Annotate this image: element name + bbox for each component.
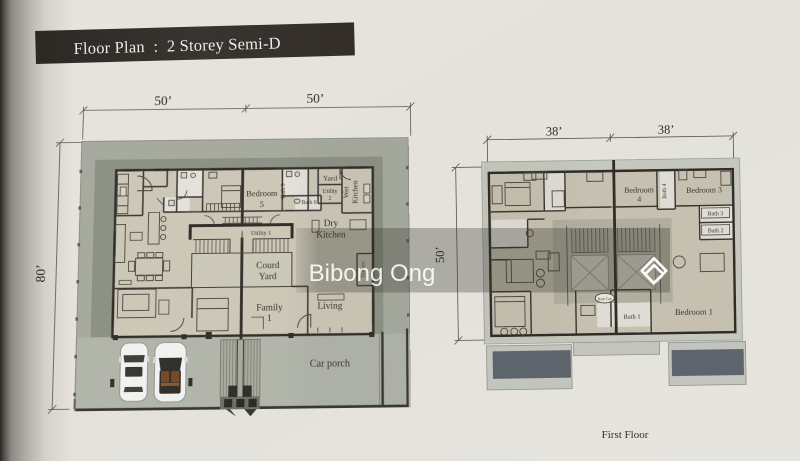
svg-text:Bath 1: Bath 1	[623, 314, 640, 321]
svg-text:38’: 38’	[658, 123, 675, 137]
svg-text:5: 5	[260, 200, 264, 209]
svg-text:Utility 1: Utility 1	[251, 231, 271, 237]
svg-text:Bedroom: Bedroom	[624, 185, 655, 194]
svg-text:Kitchen: Kitchen	[350, 180, 359, 204]
svg-text:Kitchen: Kitchen	[316, 229, 346, 239]
svg-text:Bath 2: Bath 2	[708, 228, 724, 234]
svg-text:80’: 80’	[33, 264, 49, 282]
svg-text:4: 4	[637, 195, 641, 204]
svg-text:Courd: Courd	[256, 260, 280, 270]
svg-text:Bath Tub: Bath Tub	[598, 297, 612, 301]
svg-text:Wet: Wet	[341, 185, 350, 198]
svg-text:1: 1	[267, 313, 272, 323]
svg-text:Bath 6: Bath 6	[302, 200, 317, 206]
svg-text:Bedroom 1: Bedroom 1	[675, 306, 713, 317]
svg-text:Living: Living	[317, 300, 342, 310]
svg-text:Bath 5: Bath 5	[281, 183, 287, 198]
svg-text:50’: 50’	[154, 93, 172, 108]
svg-text:Yard: Yard	[259, 271, 277, 281]
svg-text:Terrace: Terrace	[360, 261, 366, 278]
svg-text:Bath 4: Bath 4	[662, 183, 668, 198]
svg-text:Utility: Utility	[323, 189, 338, 195]
svg-text:Bath 3: Bath 3	[707, 211, 723, 217]
svg-text:Bedroom 3: Bedroom 3	[686, 185, 722, 195]
svg-text:2: 2	[329, 196, 332, 202]
svg-text:50’: 50’	[306, 91, 324, 106]
svg-text:Family: Family	[256, 302, 283, 313]
svg-text:Yard: Yard	[323, 174, 337, 183]
svg-text:Bedroom: Bedroom	[246, 189, 278, 198]
svg-text:Dry: Dry	[324, 218, 339, 228]
svg-text:Car porch: Car porch	[310, 358, 350, 370]
svg-text:38’: 38’	[546, 124, 563, 138]
